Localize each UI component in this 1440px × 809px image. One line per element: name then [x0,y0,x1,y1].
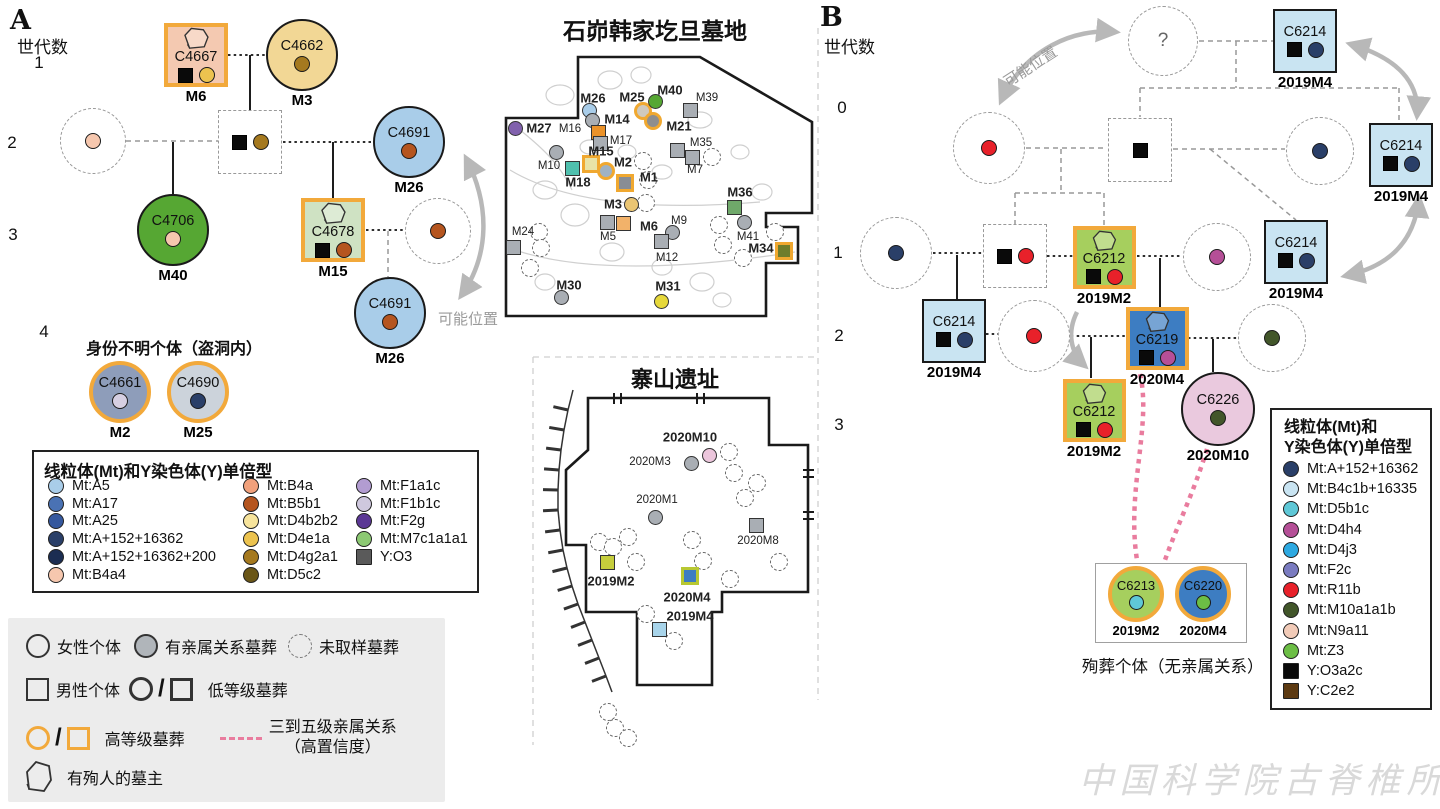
haplotype-dots [315,242,352,258]
map-marker-M31 [654,294,669,309]
generation-number-A: 1 [34,53,43,73]
map-marker-label-M16: M16 [559,123,581,135]
y-haplotype-swatch [356,549,372,565]
individual-id: C6214 [1284,25,1327,40]
haplotype-dots [190,393,206,409]
mt-haplotype-dot [1299,253,1315,269]
legend-item-label: Mt:M10a1a1b [1307,602,1396,618]
tomb-label: M3 [242,92,362,109]
mt-haplotype-swatch [1283,501,1299,517]
sacrifice-individuals-label: 殉葬个体（无亲属关系） [1082,653,1264,677]
pedigree-node-unsampled [1286,117,1354,185]
mt-haplotype-dot [1308,42,1324,58]
mt-haplotype-dot [888,245,904,261]
mt-haplotype-swatch [1283,623,1299,639]
mt-haplotype-dot [1107,269,1123,285]
map-marker-label-M2: M2 [614,155,632,170]
pedigree-node-C4690: C4690 [167,361,229,423]
mt-haplotype-dot [294,56,310,72]
unsampled-burial-icon [288,634,312,658]
legend-item-label: Y:C2e2 [1307,683,1355,699]
panel-b-generation-axis-label: 世代数 [824,33,875,58]
haplotype-dots [401,143,417,159]
mt-haplotype-swatch [1283,562,1299,578]
legendB-title-line2: Y染色体(Y)单倍型 [1284,438,1430,458]
kin-burial-label: 有亲属关系墓葬 [165,634,277,658]
high-rank-square-icon [67,727,90,750]
legend-item: Mt:R11b [1283,580,1418,600]
unsampled-pit [720,443,738,461]
pedigree-node-C6213: C6213 [1108,566,1164,622]
haplotype-dots [430,223,446,239]
generation-number-B: 2 [834,326,843,346]
symbol-legend-box: 女性个体 有亲属关系墓葬 未取样墓葬 男性个体 / 低等级墓葬 / 高等级墓葬 … [8,618,445,802]
generation-number-B: 3 [834,415,843,435]
y-haplotype-dot [1076,422,1091,437]
legend-item-label: Y:O3a2c [1307,663,1363,679]
tomb-label: 2019M4 [1245,74,1365,91]
map-marker-label-M35: M35 [690,137,712,149]
unknown-individuals-title: 身份不明个体（盗洞内） [86,335,262,359]
legend-item-label: Mt:F1b1c [380,496,440,512]
y-haplotype-dot [1139,350,1154,365]
male-symbol-icon [26,678,49,701]
mapB-title: 寨山遗址 [631,362,719,394]
mt-haplotype-swatch [356,478,372,494]
individual-id: C6214 [1275,236,1318,251]
mt-haplotype-swatch [243,567,259,583]
legendA-column1: Mt:A5Mt:A17Mt:A25Mt:A+152+16362Mt:A+152+… [48,477,216,584]
legend-item: Mt:F2c [1283,560,1418,580]
unsampled-pit [714,236,732,254]
y-haplotype-dot [178,68,193,83]
unsampled-pit [710,216,728,234]
legend-item-label: Mt:D5c2 [267,567,321,583]
legend-item: Mt:A17 [48,495,216,513]
legend-item-label: Mt:Z3 [1307,643,1344,659]
tomb-label: M25 [138,424,258,441]
possible-position-arrow-B3 [1345,198,1419,276]
pedigree-node-C4661: C4661 [89,361,151,423]
pedigree-node-C6219: C6219 [1126,307,1189,370]
tomb-label: M40 [113,267,233,284]
legend-item-label: Mt:B4a [267,478,313,494]
y-haplotype-dot [1086,269,1101,284]
map-marker-label-M5: M5 [600,231,616,243]
individual-id: C6219 [1136,333,1179,348]
legendA-column2: Mt:B4aMt:B5b1Mt:D4b2b2Mt:D4e1aMt:D4g2a1M… [243,477,338,584]
map-marker-label-M21: M21 [666,119,691,134]
legend-item-label: Mt:M7c1a1a1 [380,531,468,547]
individual-id: C6214 [933,315,976,330]
map-marker-M18 [565,161,580,176]
individual-id: C6220 [1184,578,1222,593]
distant-kinship-label: 三到五级亲属关系 [269,718,397,738]
coffin-icon [1141,311,1173,333]
high-rank-circle-icon [26,726,50,750]
symbol-row-1: 女性个体 有亲属关系墓葬 未取样墓葬 [26,634,399,658]
haplotype-dots [1196,595,1211,610]
map-marker-M6 [616,216,631,231]
map-marker-label-M26: M26 [580,91,605,106]
map-marker-label-2020M8: 2020M8 [737,535,779,547]
unsampled-pit [748,474,766,492]
map-marker-M10 [549,145,564,160]
map-marker-label-M1: M1 [640,170,658,185]
legend-item-label: Mt:D4e1a [267,531,330,547]
pedigree-node-C6214: C6214 [1273,9,1337,73]
pedigree-node-C4706: C4706 [137,194,209,266]
individual-id: C4690 [177,376,220,391]
individual-id: C6212 [1083,252,1126,267]
unsampled-pit [703,148,721,166]
generation-number-A: 3 [8,225,17,245]
pedigree-node-unsampled [1238,304,1306,372]
legend-item: Mt:A25 [48,513,216,531]
legend-item: Mt:D4j3 [1283,540,1418,560]
tomb-label: M15 [273,263,393,280]
haplotype-dots [232,134,269,150]
pedigree-node-C4691: C4691 [373,106,445,178]
pedigree-node-unsampled [405,198,471,264]
map-marker-label-M30: M30 [556,278,581,293]
map-marker-M34 [775,242,793,260]
pedigree-node-unsampled [60,108,126,174]
map-marker-2019M2 [600,555,615,570]
legend-item-label: Mt:B5b1 [267,496,321,512]
map-marker-M27 [508,121,523,136]
distant-kinship-line-icon [220,737,262,740]
haplotype-dots [1026,328,1042,344]
individual-id: C4678 [312,225,355,240]
legend-item: Mt:B5b1 [243,495,338,513]
map-marker-label-M24: M24 [512,226,534,238]
pedigree-node-C6220: C6220 [1175,566,1231,622]
mt-haplotype-dot [981,140,997,156]
legend-item-label: Mt:N9a11 [1307,623,1369,639]
haplotype-dots [1209,249,1225,265]
y-haplotype-dot [1278,253,1293,268]
y-haplotype-dot [997,249,1012,264]
haplotype-dots [1086,269,1123,285]
pedigree-node-C4662: C4662 [266,19,338,91]
legend-item-label: Mt:B4c1b+16335 [1307,481,1417,497]
haplotype-dots [1312,143,1328,159]
unsampled-burial-label: 未取样墓葬 [319,634,399,658]
tomb-label: 2019M4 [894,364,1014,381]
possible-position-label-B: 可能位置 [999,41,1061,91]
pedigree-node-unsampled [860,217,932,289]
map-marker-label-M14: M14 [604,112,629,127]
legendB-items: Mt:A+152+16362Mt:B4c1b+16335Mt:D5b1cMt:D… [1283,459,1418,701]
high-rank-label: 高等级墓葬 [105,726,185,750]
legend-item: Mt:N9a11 [1283,621,1418,641]
legend-item: Mt:M10a1a1b [1283,600,1418,620]
map-marker-label-M39: M39 [696,92,718,104]
mt-haplotype-dot [199,67,215,83]
unsampled-pit [770,553,788,571]
mt-haplotype-dot [1018,248,1034,264]
coffin-icon [1078,383,1110,405]
legend-item: Mt:F2g [356,513,468,531]
tomb-label: 2019M4 [1341,188,1440,205]
confidence-label: （高置信度） [269,738,397,758]
mt-haplotype-dot [1404,156,1420,172]
generation-number-B: 1 [833,243,842,263]
symbol-row-4: 有殉人的墓主 [24,760,163,794]
pedigree-node-C4667: C4667 [164,23,228,87]
map-marker-M35 [670,143,685,158]
legend-item-label: Mt:D4b2b2 [267,513,338,529]
mt-haplotype-swatch [356,513,372,529]
tomb-label: 2020M10 [1158,447,1278,464]
symbol-row-3: / 高等级墓葬 三到五级亲属关系 （高置信度） [26,718,397,758]
map-marker-label-M15: M15 [588,144,613,159]
unsampled-pit [683,531,701,549]
unsampled-pit [619,528,637,546]
legend-item: Mt:A5 [48,477,216,495]
individual-id: C4662 [281,39,324,54]
unsampled-pit [766,223,784,241]
legend-item: Mt:B4a4 [48,566,216,584]
coffin-icon [24,760,54,794]
low-rank-square-icon [170,678,193,701]
y-haplotype-dot [1133,143,1148,158]
haplotype-dots [165,231,181,247]
individual-id: C6213 [1117,578,1155,593]
mt-haplotype-swatch [356,496,372,512]
map-marker-label-2020M4: 2020M4 [664,590,711,605]
legend-item: Mt:A+152+16362 [1283,459,1418,479]
low-rank-label: 低等级墓葬 [208,677,288,701]
coffin-owner-label: 有殉人的墓主 [67,765,163,789]
tomb-label: M6 [136,88,256,105]
map-marker-M39 [683,103,698,118]
individual-id: C6212 [1073,405,1116,420]
pedigree-node-unsampled [1108,118,1172,182]
map-marker-label-M9: M9 [671,215,687,227]
haplotype-dots [1210,410,1226,426]
map-marker-M3 [624,197,639,212]
unsampled-pit [637,605,655,623]
pedigree-node-C6214: C6214 [922,299,986,363]
mt-haplotype-dot [382,314,398,330]
mt-haplotype-dot [957,332,973,348]
slash-glyph: / [55,724,62,752]
pedigree-node-unsampled: ? [1128,6,1198,76]
legend-item-label: Mt:F1a1c [380,478,440,494]
mt-haplotype-dot [1196,595,1211,610]
mt-haplotype-swatch [48,531,64,547]
unsampled-pit [627,553,645,571]
symbol-row-2: 男性个体 / 低等级墓葬 [26,675,288,703]
unsampled-pit [532,239,550,257]
map-marker-label-M25: M25 [619,90,644,105]
map-marker-label-2019M4: 2019M4 [667,609,714,624]
map-marker-M12 [654,234,669,249]
legendB-title-line1: 线粒体(Mt)和 [1284,418,1430,438]
tomb-label: M26 [330,350,450,367]
map-marker-2020M3 [684,456,699,471]
y-haplotype-dot [1287,42,1302,57]
individual-id: C6226 [1197,393,1240,408]
haplotype-dots [997,248,1034,264]
mt-haplotype-swatch [243,478,259,494]
possible-position-arrow-B4 [1071,312,1085,366]
tomb-label: M26 [349,179,469,196]
coffin-icon [180,27,212,50]
mt-haplotype-swatch [1283,522,1299,538]
mt-haplotype-dot [430,223,446,239]
legend-item: Mt:D4h4 [1283,520,1418,540]
haplotype-dots [1383,156,1420,172]
y-haplotype-dot [232,135,247,150]
unsampled-pit [721,570,739,588]
legend-item-label: Mt:A+152+16362 [72,531,183,547]
mt-haplotype-dot [1097,422,1113,438]
map-marker-label-M12: M12 [656,252,678,264]
unsampled-pit [736,489,754,507]
legend-item: Mt:F1b1c [356,495,468,513]
individual-id: C6214 [1380,139,1423,154]
y-haplotype-dot [315,243,330,258]
unsampled-pit [665,632,683,650]
pedigree-node-C4691: C4691 [354,277,426,349]
mt-haplotype-swatch [48,478,64,494]
legend-item-label: Mt:D4h4 [1307,522,1362,538]
pedigree-node-C4678: C4678 [301,198,365,262]
pedigree-node-C6212: C6212 [1073,226,1136,289]
pedigree-node-unsampled [953,112,1025,184]
legend-item: Mt:B4c1b+16335 [1283,479,1418,499]
pedigree-node-unsampled [983,224,1047,288]
mt-haplotype-dot [1026,328,1042,344]
haplotype-dots [1264,330,1280,346]
mt-haplotype-swatch [243,531,259,547]
mt-haplotype-swatch [243,513,259,529]
map-marker-M5 [600,215,615,230]
mt-haplotype-swatch [1283,643,1299,659]
map-marker-label-M34: M34 [748,241,773,256]
haplotype-dots [112,393,128,409]
map-marker-M24 [506,240,521,255]
legend-item: Mt:B4a [243,477,338,495]
legend-item: Mt:D4g2a1 [243,548,338,566]
haplotype-dots [1139,350,1176,366]
unsampled-pit [619,729,637,747]
map-marker-label-M6: M6 [640,219,658,234]
haplotype-dots [178,67,215,83]
legend-item-label: Mt:D4g2a1 [267,549,338,565]
mt-haplotype-dot [1210,410,1226,426]
mt-haplotype-swatch [243,496,259,512]
mt-haplotype-swatch [48,567,64,583]
mt-haplotype-dot [85,133,101,149]
legend-item: Mt:Z3 [1283,641,1418,661]
female-symbol-label: 女性个体 [57,634,121,658]
legend-item: Mt:M7c1a1a1 [356,530,468,548]
legendA-column3: Mt:F1a1cMt:F1b1cMt:F2gMt:M7c1a1a1Y:O3 [356,477,468,566]
pedigree-node-unsampled [1183,223,1251,291]
mt-haplotype-dot [401,143,417,159]
map-marker-M41 [737,215,752,230]
legend-item-label: Mt:A+152+16362 [1307,461,1418,477]
unsampled-pit [637,194,655,212]
generation-number-B: 0 [837,98,846,118]
legend-item-label: Mt:A5 [72,478,110,494]
legend-item-label: Mt:F2c [1307,562,1351,578]
map-marker-M21 [644,112,662,130]
kin-burial-icon [134,634,158,658]
pedigree-node-C6214: C6214 [1369,123,1433,187]
mt-haplotype-dot [190,393,206,409]
mt-haplotype-swatch [1283,461,1299,477]
y-haplotype-swatch [1283,663,1299,679]
mt-haplotype-dot [253,134,269,150]
mt-haplotype-swatch [1283,542,1299,558]
legend-item-label: Mt:A17 [72,496,118,512]
map-marker-2019M4 [652,622,667,637]
map-marker-M2 [597,162,615,180]
pedigree-node-C6212: C6212 [1063,379,1126,442]
legend-item: Mt:D4b2b2 [243,513,338,531]
generation-number-A: 4 [39,322,48,342]
legend-item-label: Mt:B4a4 [72,567,126,583]
mt-haplotype-swatch [243,549,259,565]
mt-haplotype-dot [165,231,181,247]
legend-item: Y:O3 [356,548,468,566]
map-marker-label-M40: M40 [657,83,682,98]
coffin-icon [1088,230,1120,252]
female-symbol-icon [26,634,50,658]
y-haplotype-swatch [1283,683,1299,699]
map-marker-M36 [727,200,742,215]
mt-haplotype-swatch [48,513,64,529]
map-marker-label-2020M10: 2020M10 [663,430,717,445]
individual-id: C4691 [369,297,412,312]
mt-haplotype-dot [1264,330,1280,346]
haplotype-dots [888,245,904,261]
individual-id: C4691 [388,126,431,141]
individual-id: C4667 [175,50,218,65]
legend-item: Mt:D4e1a [243,530,338,548]
generation-number-A: 2 [7,133,16,153]
mapA-title: 石峁韩家圪旦墓地 [563,12,747,46]
mt-haplotype-dot [1209,249,1225,265]
map-marker-2020M8 [749,518,764,533]
map-marker-2020M4 [681,567,699,585]
male-symbol-label: 男性个体 [56,677,120,701]
legend-item-label: Mt:A25 [72,513,118,529]
legend-item-label: Mt:D5b1c [1307,501,1369,517]
figure-stage: A 世代数 B 世代数 石峁韩家圪旦墓地 寨山遗址 身份不明个体（盗洞内） 可能… [0,0,1440,809]
map-marker-M1 [616,174,634,192]
panel-b-letter: B [820,2,843,33]
tomb-label: 2020M4 [1143,623,1263,638]
pedigree-node-unsampled [218,110,282,174]
haplotype-dots [85,133,101,149]
slash-glyph: / [158,675,165,703]
legend-item: Mt:D5b1c [1283,499,1418,519]
haplotype-dots [1129,595,1144,610]
y-haplotype-dot [1383,156,1398,171]
tomb-label: 2019M2 [1044,290,1164,307]
possible-position-label-A: 可能位置 [438,308,498,329]
map-marker-label-M18: M18 [565,175,590,190]
legend-item: Y:C2e2 [1283,681,1418,701]
map-marker-label-M10: M10 [538,160,560,172]
legend-item: Mt:D5c2 [243,566,338,584]
